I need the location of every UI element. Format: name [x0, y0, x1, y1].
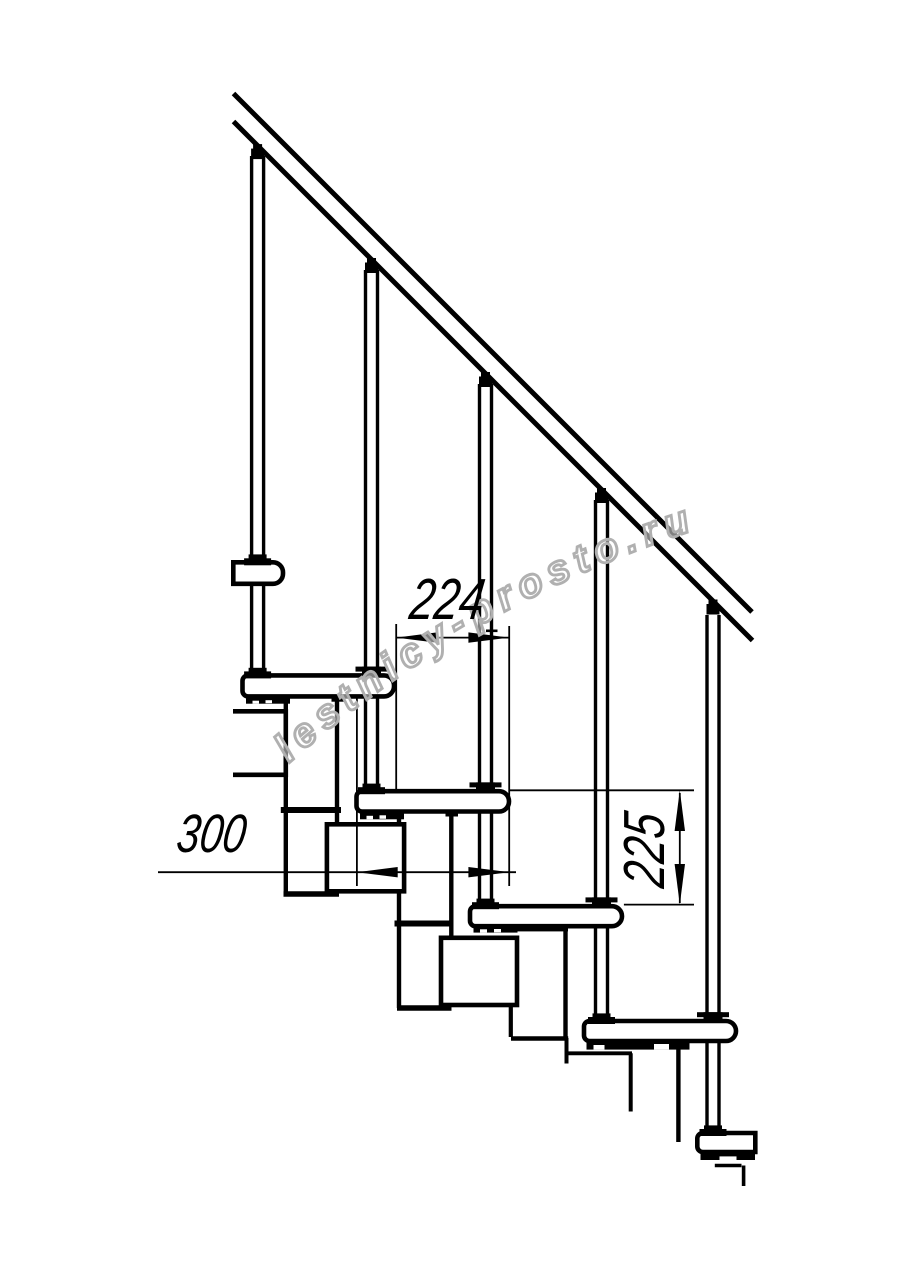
svg-text:300: 300 — [173, 804, 250, 864]
svg-text:224: 224 — [405, 566, 489, 631]
svg-text:225: 225 — [611, 808, 676, 892]
